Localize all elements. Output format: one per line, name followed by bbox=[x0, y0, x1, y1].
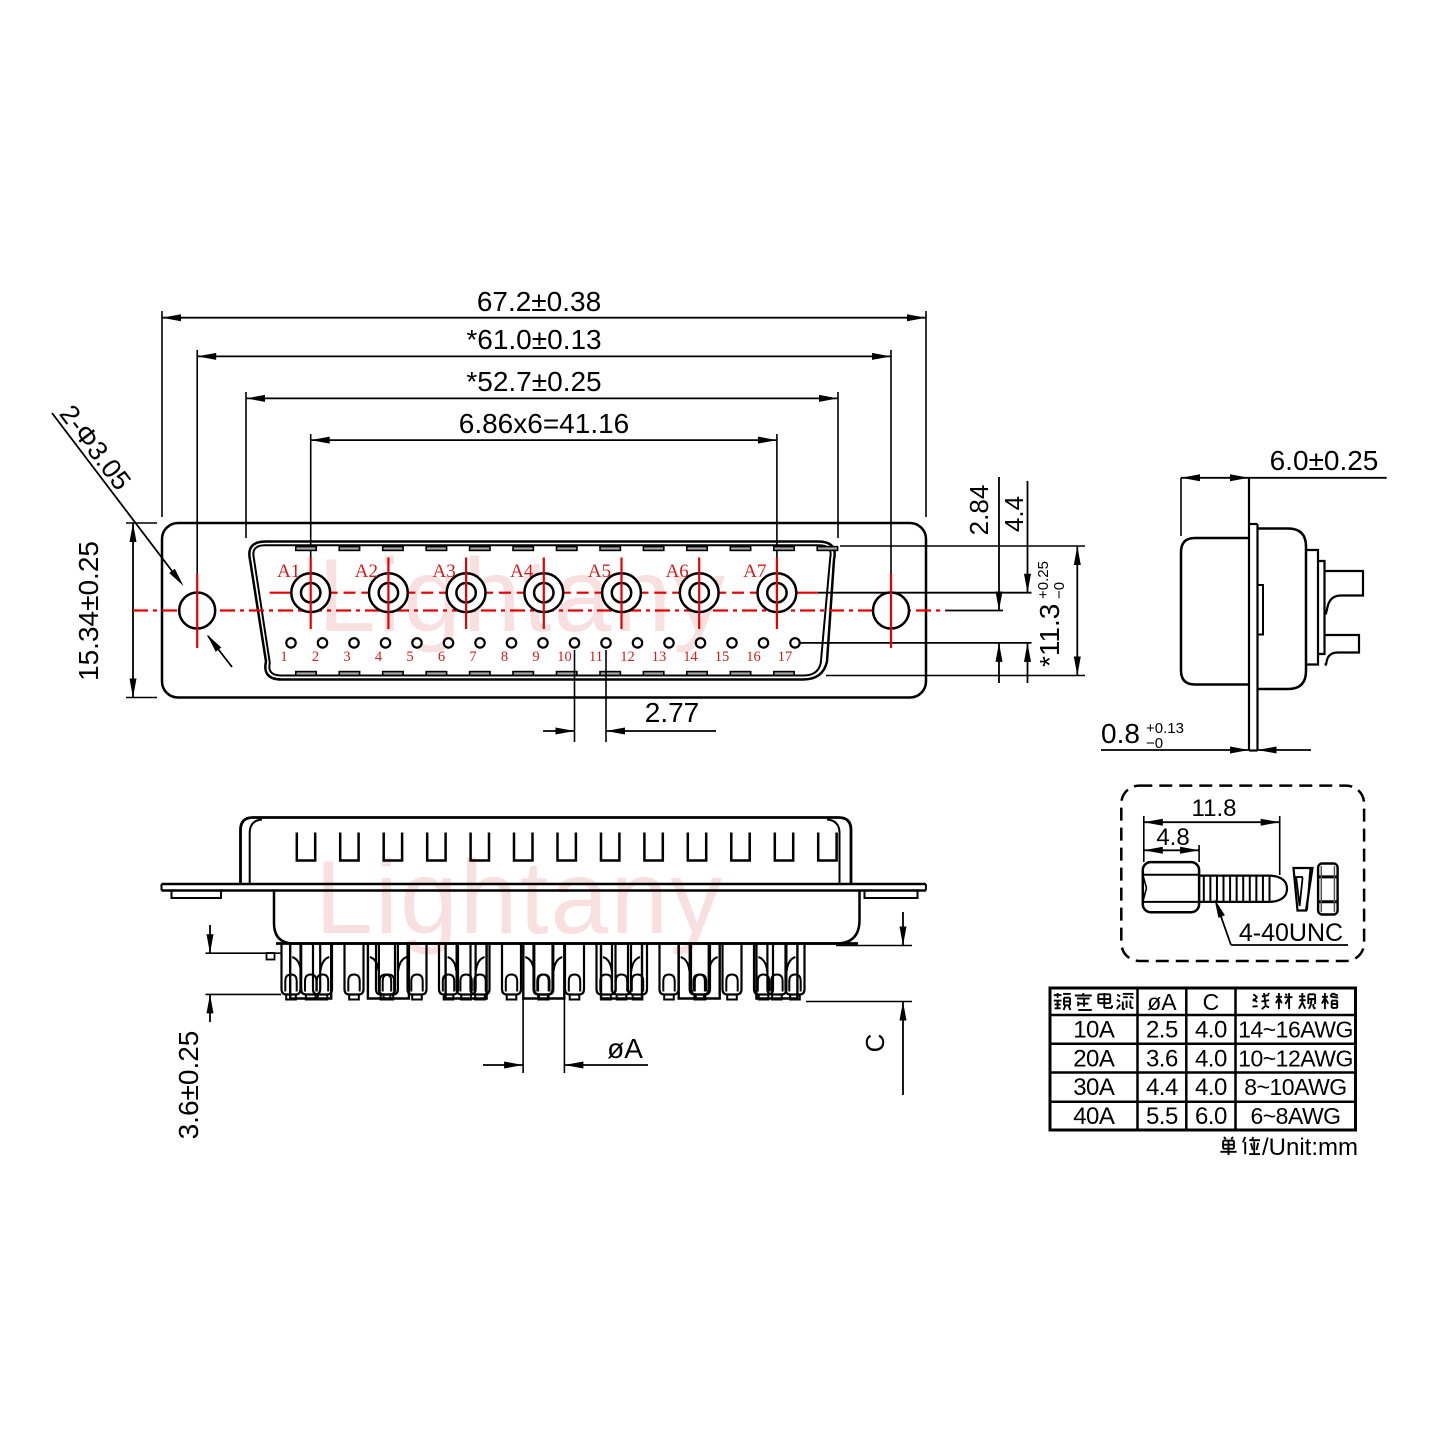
svg-text:15: 15 bbox=[715, 649, 730, 665]
svg-text:A2: A2 bbox=[355, 561, 378, 582]
svg-text:30A: 30A bbox=[1073, 1074, 1115, 1101]
svg-text:11: 11 bbox=[589, 649, 603, 665]
svg-text:A6: A6 bbox=[666, 561, 689, 582]
svg-text:2.5: 2.5 bbox=[1146, 1017, 1178, 1044]
svg-text:3.6±0.25: 3.6±0.25 bbox=[173, 1031, 204, 1140]
svg-text:A1: A1 bbox=[277, 561, 300, 582]
svg-text:−0: −0 bbox=[1051, 582, 1068, 599]
svg-text:4.8: 4.8 bbox=[1156, 824, 1189, 851]
svg-text:6.0±0.25: 6.0±0.25 bbox=[1270, 445, 1379, 476]
svg-text:4.0: 4.0 bbox=[1195, 1017, 1227, 1044]
svg-text:3: 3 bbox=[343, 649, 350, 665]
svg-text:11.8: 11.8 bbox=[1192, 795, 1237, 822]
svg-text:4.0: 4.0 bbox=[1195, 1074, 1227, 1101]
svg-text:10~12AWG: 10~12AWG bbox=[1238, 1045, 1353, 1071]
svg-text:4.4: 4.4 bbox=[999, 496, 1029, 532]
svg-text:5: 5 bbox=[406, 649, 413, 665]
svg-text:*11.3: *11.3 bbox=[1034, 604, 1065, 667]
svg-text:2: 2 bbox=[312, 649, 319, 665]
svg-text:7: 7 bbox=[469, 649, 476, 665]
svg-text:16: 16 bbox=[746, 649, 761, 665]
svg-text:*52.7±0.25: *52.7±0.25 bbox=[466, 366, 601, 397]
svg-text:4.4: 4.4 bbox=[1146, 1074, 1178, 1101]
svg-text:15.34±0.25: 15.34±0.25 bbox=[73, 541, 104, 681]
svg-text:A4: A4 bbox=[510, 561, 534, 582]
svg-text:2.77: 2.77 bbox=[645, 697, 700, 728]
svg-text:6.86x6=41.16: 6.86x6=41.16 bbox=[459, 408, 630, 439]
svg-text:4.0: 4.0 bbox=[1195, 1045, 1227, 1072]
svg-text:12: 12 bbox=[620, 649, 635, 665]
svg-text:2.84: 2.84 bbox=[964, 485, 994, 536]
svg-text:67.2±0.38: 67.2±0.38 bbox=[477, 286, 601, 317]
svg-text:1: 1 bbox=[280, 649, 287, 665]
svg-text:4: 4 bbox=[375, 649, 383, 665]
svg-text:14: 14 bbox=[683, 649, 698, 665]
svg-text:17: 17 bbox=[778, 649, 793, 665]
svg-text:3.6: 3.6 bbox=[1146, 1045, 1178, 1072]
svg-text:+0.25: +0.25 bbox=[1035, 561, 1052, 599]
svg-text:4-40UNC: 4-40UNC bbox=[1239, 919, 1343, 947]
svg-text:A3: A3 bbox=[432, 561, 455, 582]
svg-text:C: C bbox=[1203, 989, 1220, 1015]
svg-text:A5: A5 bbox=[588, 561, 611, 582]
svg-text:0.8: 0.8 bbox=[1101, 718, 1140, 749]
svg-text:9: 9 bbox=[532, 649, 539, 665]
svg-text:5.5: 5.5 bbox=[1146, 1103, 1178, 1130]
svg-text:13: 13 bbox=[652, 649, 667, 665]
svg-text:10A: 10A bbox=[1073, 1017, 1115, 1044]
svg-text:8~10AWG: 8~10AWG bbox=[1244, 1074, 1346, 1100]
svg-text:*61.0±0.13: *61.0±0.13 bbox=[466, 324, 601, 355]
svg-text:14~16AWG: 14~16AWG bbox=[1238, 1017, 1353, 1043]
svg-text:6~8AWG: 6~8AWG bbox=[1250, 1103, 1340, 1129]
svg-text:6.0: 6.0 bbox=[1195, 1103, 1227, 1130]
svg-text:10: 10 bbox=[557, 649, 572, 665]
svg-text:øA: øA bbox=[1147, 989, 1177, 1015]
svg-text:20A: 20A bbox=[1073, 1045, 1115, 1072]
svg-text:8: 8 bbox=[501, 649, 508, 665]
svg-text:40A: 40A bbox=[1073, 1103, 1115, 1130]
svg-text:C: C bbox=[860, 1034, 890, 1053]
svg-text:6: 6 bbox=[438, 649, 445, 665]
svg-text:A7: A7 bbox=[743, 561, 766, 582]
svg-text:/Unit:mm: /Unit:mm bbox=[1262, 1134, 1358, 1161]
svg-text:øA: øA bbox=[607, 1033, 643, 1064]
svg-text:−0: −0 bbox=[1146, 735, 1163, 752]
